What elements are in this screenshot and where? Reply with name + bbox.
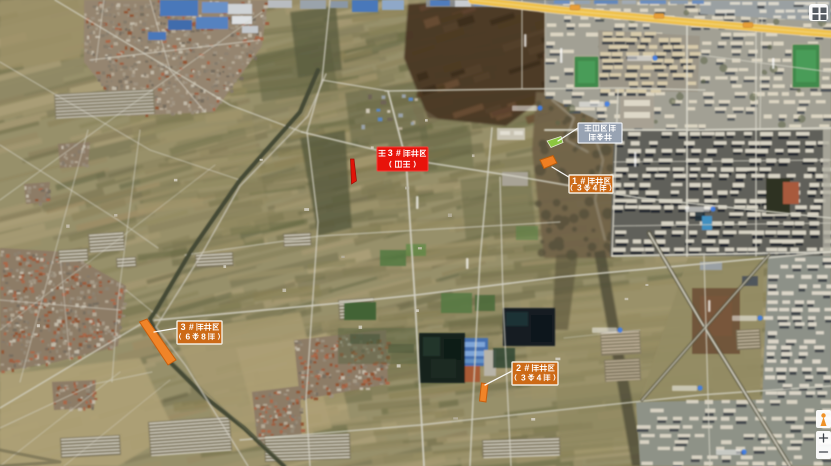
svg-text:#: # [396, 148, 401, 158]
svg-text:8: 8 [201, 331, 206, 341]
svg-text:6: 6 [185, 331, 190, 341]
svg-text:3: 3 [577, 183, 582, 193]
svg-text:3: 3 [521, 372, 526, 382]
svg-text:4: 4 [537, 372, 542, 382]
svg-text:3: 3 [388, 148, 393, 158]
svg-text:4: 4 [593, 183, 598, 193]
